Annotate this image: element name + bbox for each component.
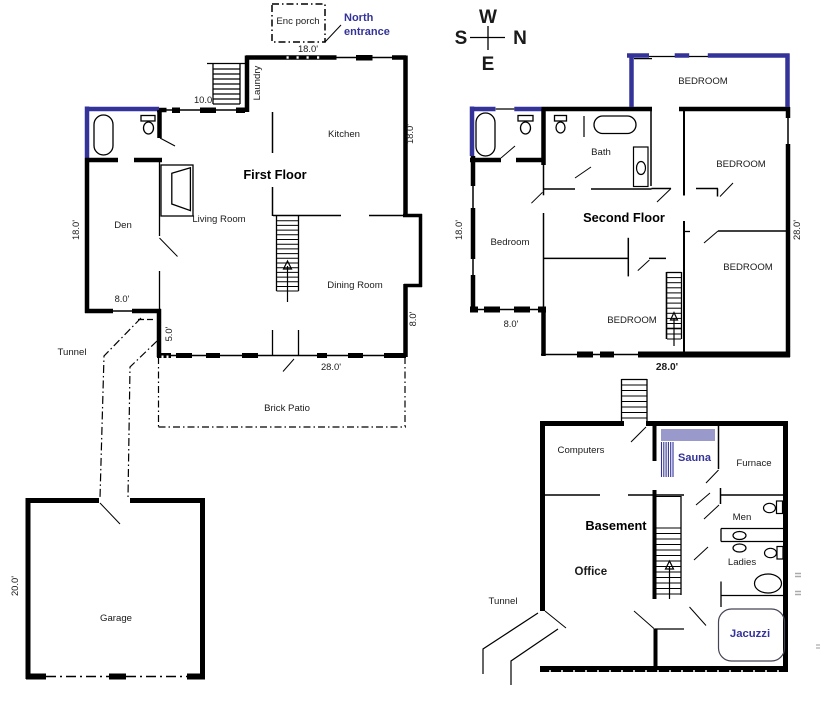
svg-text:20.0': 20.0' [9, 576, 20, 596]
svg-text:Enc porch: Enc porch [276, 16, 319, 27]
svg-text:18.0': 18.0' [453, 220, 464, 240]
svg-text:N: N [513, 28, 527, 49]
svg-text:Living Room: Living Room [192, 214, 245, 225]
svg-text:W: W [479, 7, 497, 28]
svg-text:BEDROOM: BEDROOM [678, 76, 728, 87]
svg-text:18.0': 18.0' [298, 43, 318, 54]
svg-text:Garage: Garage [100, 613, 132, 624]
svg-text:5.0': 5.0' [163, 326, 174, 341]
svg-text:BEDROOM: BEDROOM [607, 315, 657, 326]
svg-text:Laundry: Laundry [252, 65, 263, 100]
svg-text:18.0': 18.0' [70, 220, 81, 240]
svg-text:28.0': 28.0' [791, 220, 802, 240]
svg-text:Second Floor: Second Floor [583, 210, 665, 225]
svg-text:28.0': 28.0' [656, 362, 678, 373]
svg-text:Men: Men [733, 512, 752, 523]
svg-text:8.0': 8.0' [407, 311, 418, 326]
svg-text:Computers: Computers [558, 445, 605, 456]
svg-text:Office: Office [575, 566, 608, 578]
svg-text:8.0': 8.0' [504, 318, 519, 329]
svg-text:28.0': 28.0' [321, 361, 341, 372]
svg-text:10.0': 10.0' [194, 94, 214, 105]
svg-text:BEDROOM: BEDROOM [723, 262, 773, 273]
svg-text:E: E [482, 54, 495, 75]
svg-text:Sauna: Sauna [678, 452, 712, 464]
svg-text:Tunnel: Tunnel [58, 347, 87, 358]
svg-text:Kitchen: Kitchen [328, 129, 360, 140]
svg-text:BEDROOM: BEDROOM [716, 159, 766, 170]
svg-text:North: North [344, 12, 374, 24]
svg-text:Furnace: Furnace [736, 458, 771, 469]
svg-text:Tunnel: Tunnel [489, 596, 518, 607]
svg-text:Dining Room: Dining Room [327, 280, 382, 291]
svg-text:Bedroom: Bedroom [491, 237, 530, 248]
svg-text:Bath: Bath [591, 147, 611, 158]
svg-text:First Floor: First Floor [243, 167, 306, 182]
svg-text:entrance: entrance [344, 26, 390, 38]
svg-text:Brick Patio: Brick Patio [264, 403, 310, 414]
svg-text:S: S [455, 28, 468, 49]
svg-text:Jacuzzi: Jacuzzi [730, 628, 770, 640]
svg-text:18.0': 18.0' [404, 124, 415, 144]
svg-text:Den: Den [114, 220, 132, 231]
svg-text:8.0': 8.0' [115, 293, 130, 304]
svg-text:Ladies: Ladies [728, 557, 756, 568]
svg-text:Basement: Basement [585, 518, 647, 533]
